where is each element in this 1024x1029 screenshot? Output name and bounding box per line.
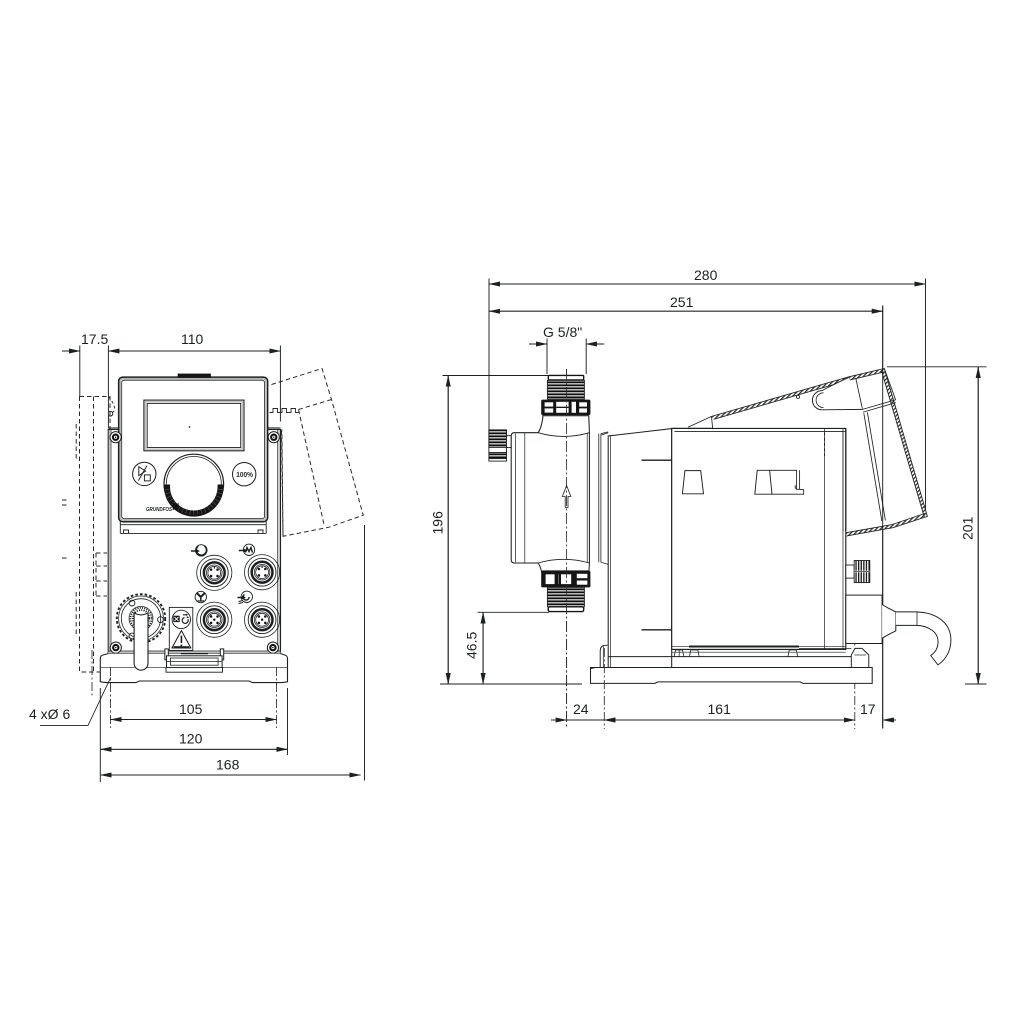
svg-text:120: 120: [179, 731, 203, 747]
svg-text:105: 105: [179, 701, 203, 717]
svg-text:4 xØ 6: 4 xØ 6: [29, 706, 70, 722]
svg-text:17.5: 17.5: [81, 331, 108, 347]
svg-text:100%: 100%: [236, 470, 253, 479]
svg-text:GRUNDFOS: GRUNDFOS: [146, 507, 172, 513]
svg-text:280: 280: [694, 267, 718, 283]
svg-text:161: 161: [708, 701, 732, 717]
svg-text:201: 201: [960, 516, 976, 540]
svg-text:24: 24: [573, 701, 589, 717]
svg-text:17: 17: [860, 701, 876, 717]
svg-text:110: 110: [181, 331, 204, 347]
svg-text:G 5/8": G 5/8": [543, 324, 582, 340]
svg-text:168: 168: [216, 757, 240, 773]
svg-text:196: 196: [430, 511, 446, 535]
svg-text:251: 251: [670, 294, 694, 310]
svg-text:46.5: 46.5: [464, 632, 480, 659]
